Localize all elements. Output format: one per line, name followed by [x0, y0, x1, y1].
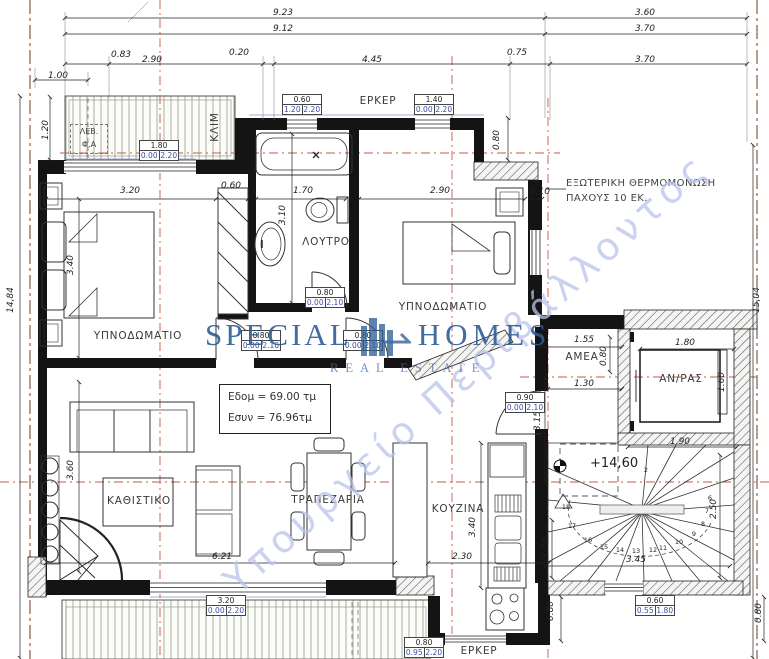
coffee-table: [103, 478, 173, 526]
wardrobe: [218, 188, 248, 319]
brand-word-special: SPECIAL: [205, 317, 352, 353]
level-value: +14,60: [590, 456, 638, 471]
area-summary-box: Εδομ = 69.00 τμ Εσυν = 76.96τμ: [219, 384, 331, 434]
area-total: Εσυν = 76.96τμ: [228, 408, 330, 429]
brand-word-homes: HOMES: [418, 317, 552, 353]
boiler-gas-note: ΛΕΒ. Φ.Α: [70, 124, 108, 154]
boiler-note-line2: Φ.Α: [71, 138, 107, 151]
boiler-note-line1: ΛΕΒ.: [71, 125, 107, 138]
bed-right-bedroom: [403, 188, 523, 284]
floor-plan-sheet: 9.233.609.123.700.832.900.204.450.753.70…: [0, 0, 769, 659]
elevator: [640, 350, 727, 422]
bed-left-bedroom: [40, 183, 154, 346]
sofa: [70, 402, 194, 452]
brand-subtitle: REAL ESTATE: [330, 361, 486, 376]
sink: [255, 222, 285, 266]
homes-building-logo-icon: [359, 312, 411, 358]
area-structured: Εδομ = 69.00 τμ: [228, 387, 330, 408]
special-homes-watermark: SPECIAL HOMES: [205, 312, 551, 358]
bathtub: [256, 133, 352, 175]
walls: [38, 118, 634, 645]
toilet: [306, 197, 348, 223]
corner-fireplace: [60, 518, 122, 580]
balcony-bottom: [62, 600, 430, 659]
staircase: [548, 445, 734, 581]
armchair: [196, 466, 240, 556]
